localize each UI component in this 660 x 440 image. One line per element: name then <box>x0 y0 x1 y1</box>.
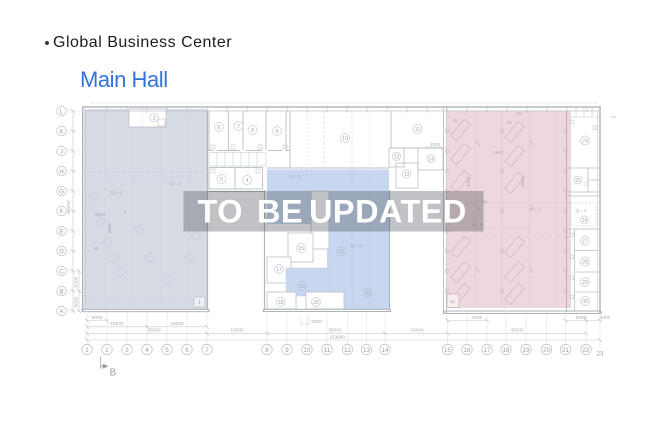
svg-text:15: 15 <box>298 246 304 252</box>
svg-text:9: 9 <box>285 347 289 354</box>
svg-text:23: 23 <box>516 111 522 116</box>
svg-text:45: 45 <box>452 118 458 123</box>
svg-text:14: 14 <box>382 347 389 354</box>
svg-text:10: 10 <box>304 347 311 354</box>
svg-text:45: 45 <box>506 120 512 125</box>
svg-text:6000: 6000 <box>74 296 80 307</box>
svg-text:6000: 6000 <box>576 315 587 321</box>
svg-text:7: 7 <box>205 347 209 354</box>
svg-text:6000: 6000 <box>92 315 103 321</box>
svg-text:2000: 2000 <box>311 319 322 325</box>
svg-text:E: E <box>59 228 63 235</box>
svg-text:1000: 1000 <box>430 142 441 147</box>
svg-text:4: 4 <box>245 178 248 184</box>
svg-text:19: 19 <box>299 284 305 290</box>
svg-text:18000: 18000 <box>170 321 184 327</box>
svg-text:8: 8 <box>251 128 254 134</box>
svg-text:21: 21 <box>562 347 569 354</box>
svg-text:1000: 1000 <box>472 315 483 321</box>
svg-text:18: 18 <box>503 347 510 354</box>
svg-text:45000: 45000 <box>510 328 524 334</box>
svg-text:60000: 60000 <box>66 200 72 214</box>
svg-text:6000: 6000 <box>466 176 471 187</box>
svg-text:5: 5 <box>220 177 223 183</box>
svg-text:1: 1 <box>85 347 89 354</box>
svg-text:14: 14 <box>428 157 434 163</box>
svg-text:22: 22 <box>583 347 590 354</box>
svg-text:9: 9 <box>275 129 278 135</box>
svg-text:45: 45 <box>93 246 99 251</box>
svg-text:J: J <box>60 148 63 155</box>
svg-text:32: 32 <box>450 299 456 304</box>
svg-text:24: 24 <box>582 139 588 145</box>
svg-text:11: 11 <box>415 127 421 133</box>
svg-text:7: 7 <box>237 124 240 130</box>
svg-text:29: 29 <box>582 280 588 286</box>
svg-text:1: 1 <box>198 300 201 306</box>
svg-text:6000: 6000 <box>74 276 80 287</box>
svg-text:2E03: 2E03 <box>95 212 106 217</box>
svg-text:6: 6 <box>185 347 189 354</box>
svg-text:B: B <box>59 288 63 295</box>
svg-text:B: B <box>110 368 117 379</box>
svg-text:10: 10 <box>342 136 348 142</box>
svg-text:20: 20 <box>543 347 550 354</box>
svg-text:F: F <box>60 208 64 215</box>
svg-text:8: 8 <box>265 347 269 354</box>
svg-text:16000: 16000 <box>230 328 244 334</box>
svg-text:17: 17 <box>276 267 282 273</box>
svg-text:30: 30 <box>582 299 588 305</box>
svg-text:15: 15 <box>444 347 451 354</box>
svg-text:6: 6 <box>217 125 220 131</box>
svg-text:3000: 3000 <box>600 315 611 321</box>
svg-text:3: 3 <box>125 347 129 354</box>
svg-text:12: 12 <box>394 155 400 161</box>
svg-text:2: 2 <box>105 347 109 354</box>
svg-text:36000: 36000 <box>147 328 161 334</box>
svg-text:13: 13 <box>363 347 370 354</box>
svg-text:H: H <box>59 168 63 175</box>
svg-text:TOBEUPDATED: TOBEUPDATED <box>198 194 467 230</box>
svg-text:153600: 153600 <box>329 334 345 340</box>
svg-text:C: C <box>59 268 64 275</box>
svg-text:Q = 3: Q = 3 <box>529 207 541 212</box>
svg-text:36000: 36000 <box>328 328 342 334</box>
svg-text:26: 26 <box>582 218 588 224</box>
svg-text:28: 28 <box>582 260 588 266</box>
svg-text:19: 19 <box>523 347 530 354</box>
svg-text:18000: 18000 <box>110 321 124 327</box>
svg-text:20: 20 <box>313 300 319 306</box>
svg-text:23: 23 <box>597 351 604 358</box>
svg-text:11: 11 <box>324 347 331 354</box>
svg-text:25: 25 <box>575 178 581 184</box>
svg-text:Q = 3: Q = 3 <box>289 174 301 179</box>
svg-text:6000: 6000 <box>520 176 525 187</box>
svg-text:17: 17 <box>484 347 491 354</box>
svg-text:12: 12 <box>344 347 351 354</box>
svg-text:13: 13 <box>404 172 410 178</box>
svg-text:Q = 3: Q = 3 <box>575 208 587 213</box>
svg-text:27: 27 <box>582 239 588 245</box>
svg-text:18: 18 <box>277 300 283 306</box>
svg-text:Q = 3: Q = 3 <box>110 190 122 195</box>
svg-text:D: D <box>59 248 64 255</box>
svg-text:Q = 3: Q = 3 <box>350 243 362 248</box>
svg-text:16: 16 <box>464 347 471 354</box>
svg-text:L: L <box>60 108 64 115</box>
svg-text:9000: 9000 <box>107 222 112 233</box>
svg-text:3: 3 <box>152 116 155 122</box>
svg-text:G: G <box>59 188 64 195</box>
svg-text:5: 5 <box>165 347 169 354</box>
svg-text:4: 4 <box>145 347 149 354</box>
svg-text:22: 22 <box>365 291 371 297</box>
svg-text:18400: 18400 <box>410 328 424 334</box>
svg-text:1900: 1900 <box>493 150 504 155</box>
svg-text:Q = 3: Q = 3 <box>169 181 181 186</box>
svg-text:21: 21 <box>338 249 344 255</box>
